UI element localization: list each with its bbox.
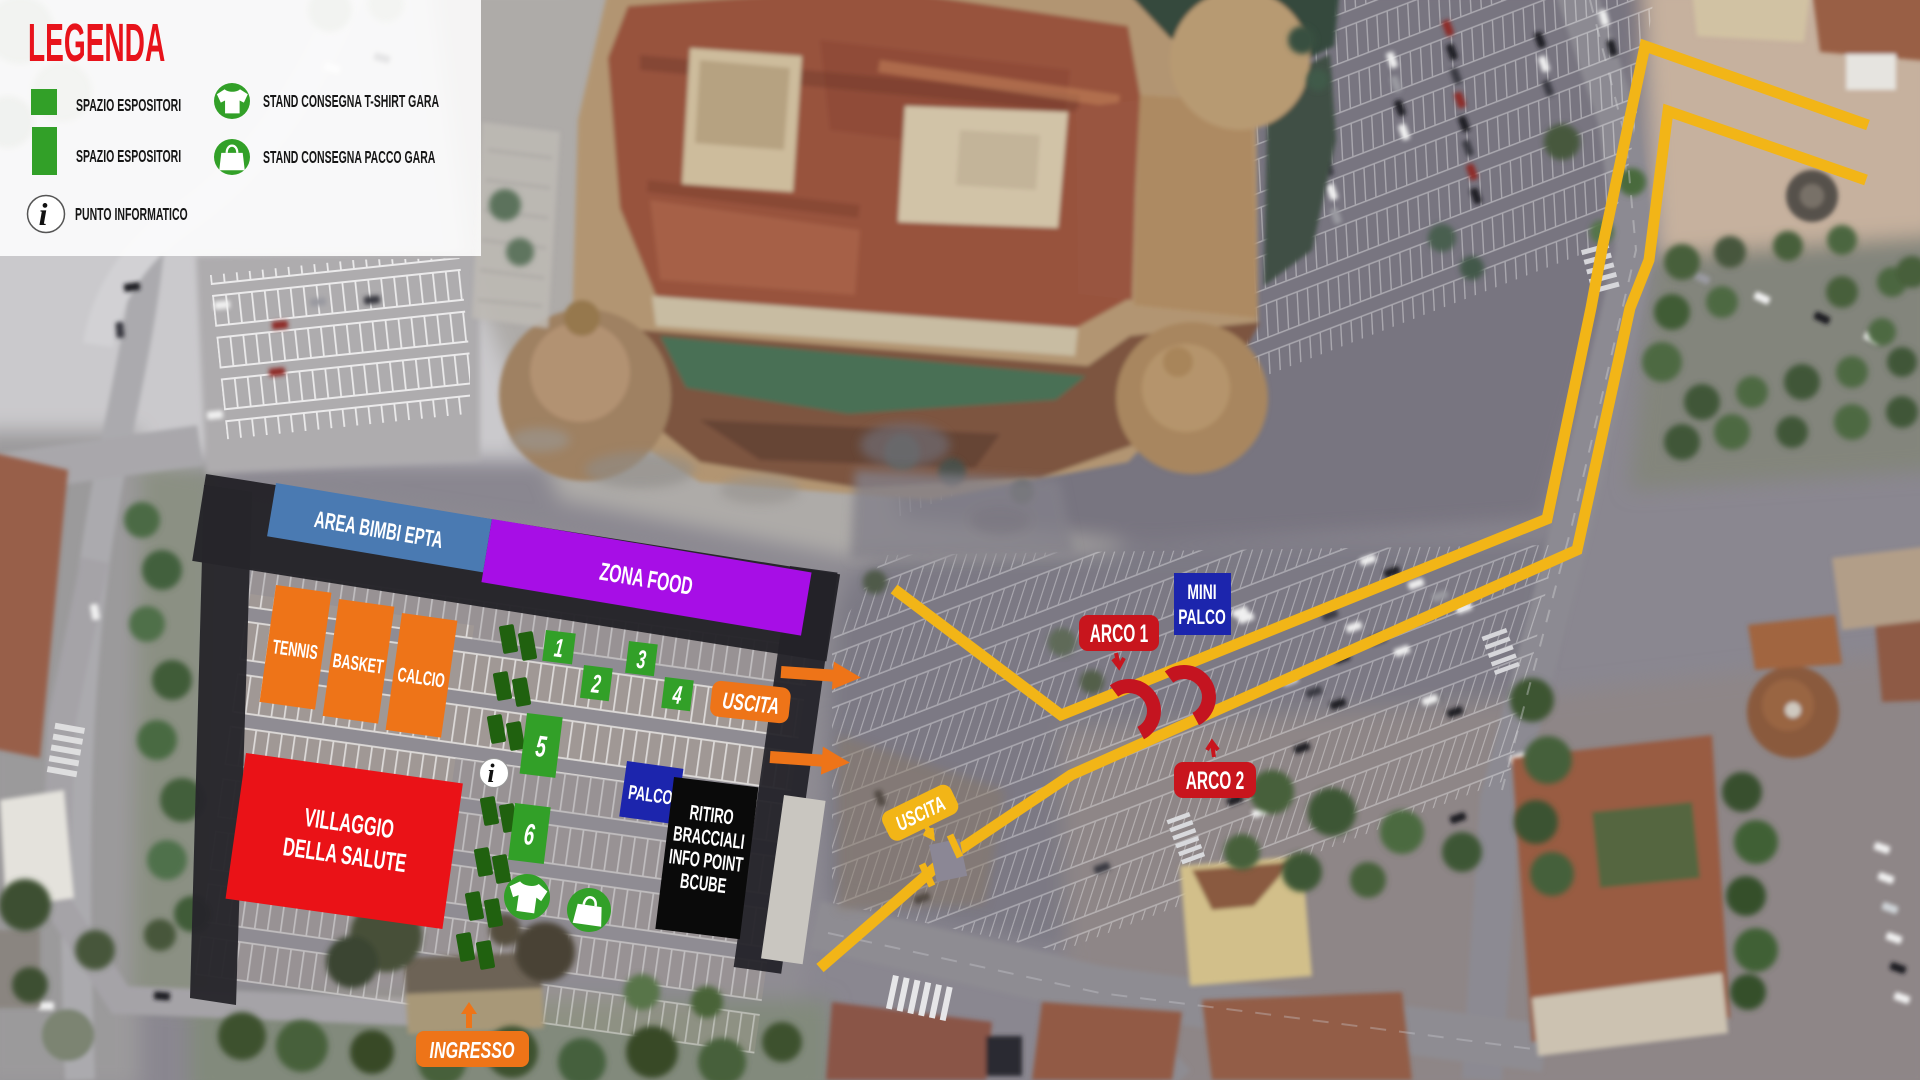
svg-text:ARCO 1: ARCO 1: [1090, 620, 1149, 648]
svg-text:i: i: [487, 759, 495, 788]
svg-text:ARCO 2: ARCO 2: [1186, 767, 1245, 795]
svg-text:MINI: MINI: [1187, 580, 1216, 604]
svg-text:LEGENDA: LEGENDA: [28, 13, 165, 73]
svg-text:PALCO: PALCO: [1178, 605, 1226, 629]
svg-text:STAND CONSEGNA T-SHIRT GARA: STAND CONSEGNA T-SHIRT GARA: [263, 92, 439, 111]
svg-text:SPAZIO ESPOSITORI: SPAZIO ESPOSITORI: [76, 147, 181, 166]
svg-text:i: i: [39, 196, 48, 232]
svg-text:STAND CONSEGNA PACCO GARA: STAND CONSEGNA PACCO GARA: [263, 148, 436, 167]
svg-text:PUNTO INFORMATICO: PUNTO INFORMATICO: [75, 205, 188, 224]
svg-text:SPAZIO ESPOSITORI: SPAZIO ESPOSITORI: [76, 96, 181, 115]
svg-text:INGRESSO: INGRESSO: [430, 1038, 515, 1063]
